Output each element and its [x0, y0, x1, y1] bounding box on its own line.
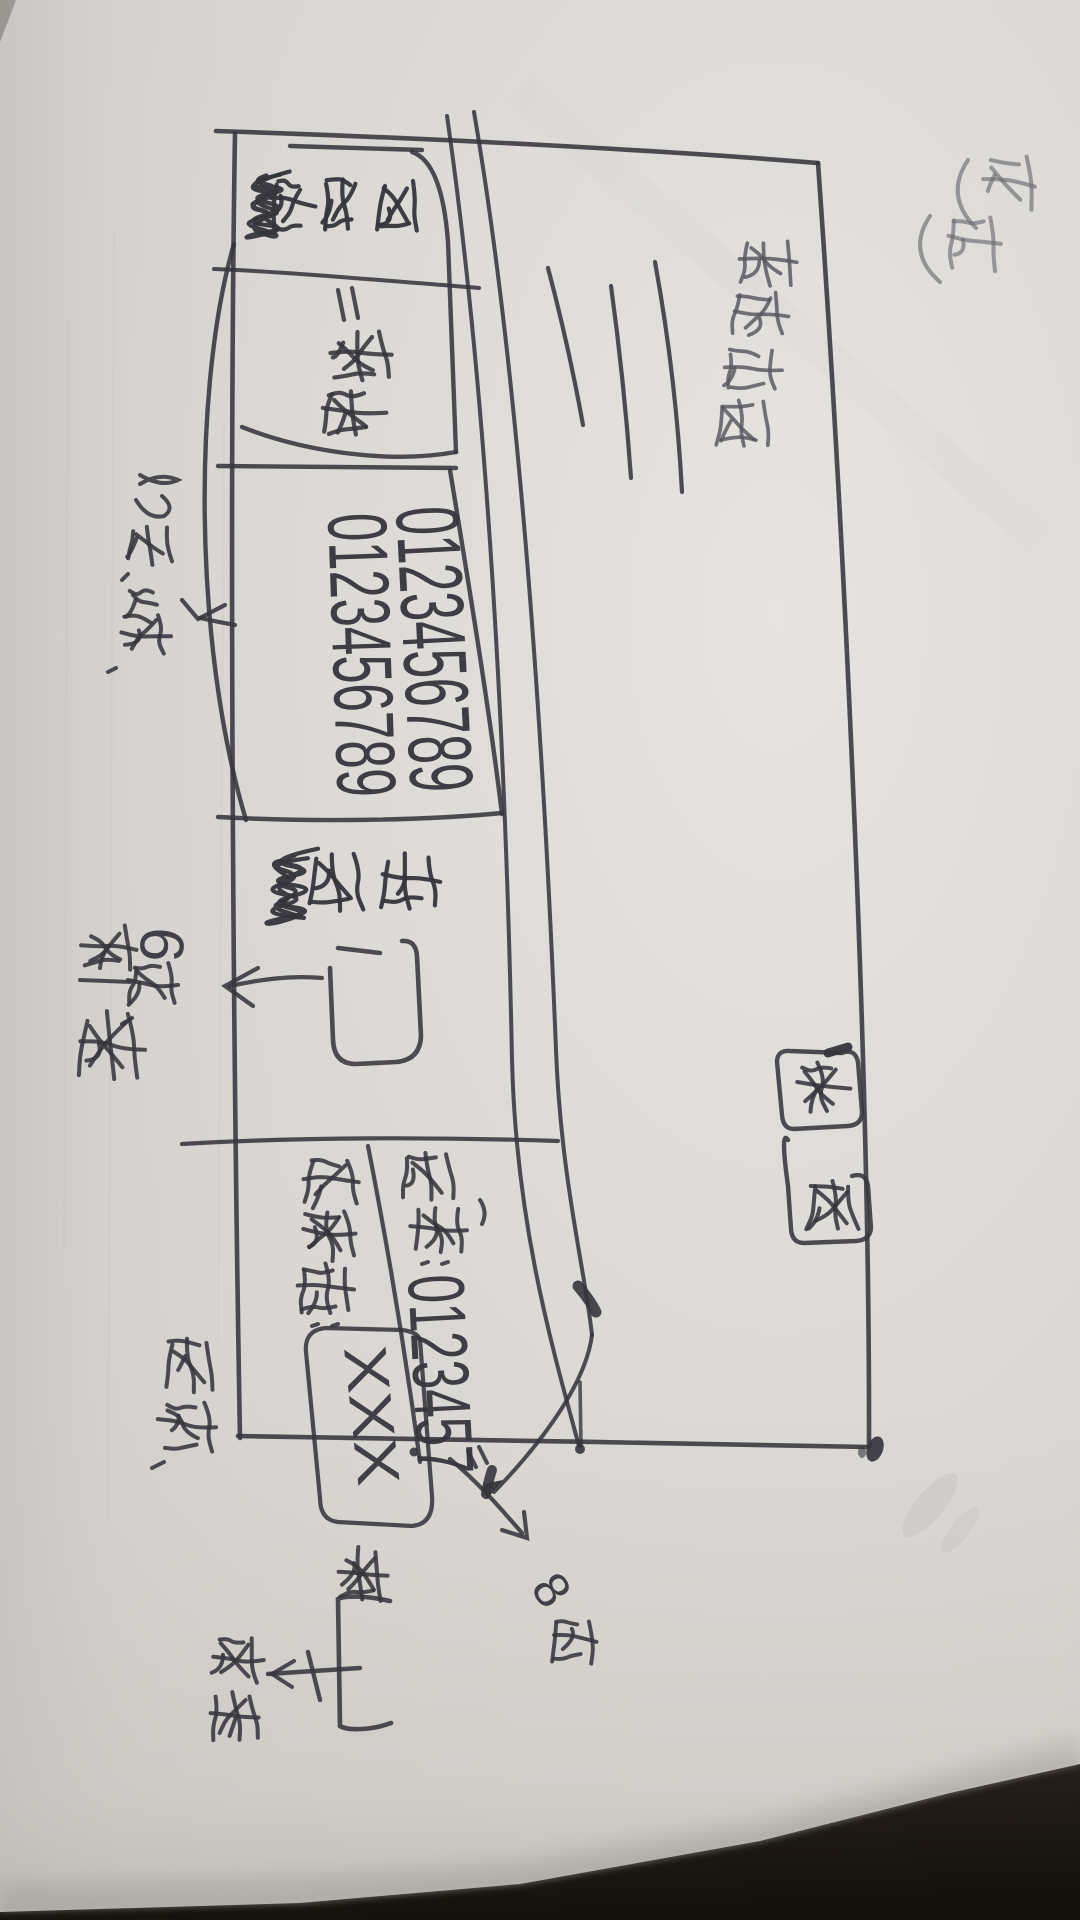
svg-text:0123456789: 0123456789	[310, 511, 414, 798]
svg-text:6: 6	[126, 925, 197, 964]
